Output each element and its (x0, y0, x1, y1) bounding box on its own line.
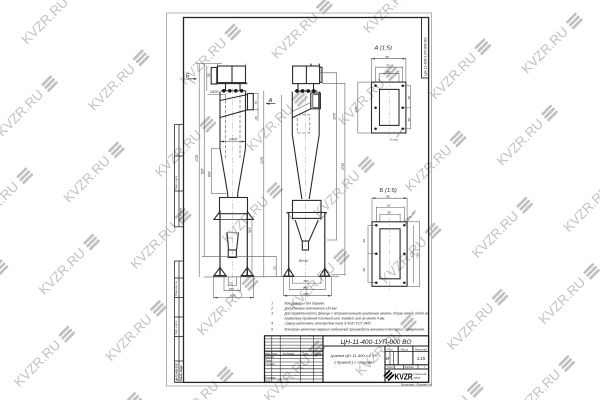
svg-text:ЦН-11-400-1УП-000 ВО: ЦН-11-400-1УП-000 ВО (423, 37, 427, 76)
svg-text:50: 50 (407, 96, 411, 100)
svg-text:герметику применяя плотный шов: герметику применяя плотный шов. Каждый ш… (285, 317, 386, 321)
svg-text:( правый ) с опорами: ( правый ) с опорами (334, 359, 374, 364)
svg-text:3: 3 (271, 311, 273, 315)
svg-text:∅400: ∅400 (229, 137, 238, 141)
svg-text:430: 430 (230, 294, 235, 298)
svg-text:Для герметичности фланцы с опо: Для герметичности фланцы с опорным кольц… (284, 311, 429, 315)
svg-text:1725: 1725 (195, 155, 199, 162)
svg-text:Листов: Листов (403, 366, 414, 369)
svg-text:KVZR: KVZR (395, 372, 414, 382)
svg-text:600: 600 (303, 292, 308, 296)
svg-text:5: 5 (271, 328, 273, 332)
svg-text:KVZR.RU: KVZR.RU (419, 392, 472, 400)
svg-text:50×40: 50×40 (299, 259, 308, 263)
svg-text:Утв.: Утв. (265, 379, 271, 383)
svg-text:4: 4 (271, 321, 273, 325)
svg-text:50: 50 (387, 211, 391, 215)
svg-text:KVZR.RU: KVZR.RU (61, 153, 114, 206)
svg-text:Лист: Лист (386, 366, 393, 369)
svg-text:2: 2 (270, 306, 273, 310)
svg-text:Подп. и дата: Подп. и дата (175, 320, 178, 335)
svg-text:50: 50 (407, 118, 411, 122)
svg-text:KVZR.RU: KVZR.RU (519, 24, 572, 77)
svg-text:Копировал: Копировал (401, 382, 415, 386)
svg-text:№ докум.: № докум. (283, 351, 295, 355)
svg-text:завод: завод (414, 376, 421, 379)
svg-text:ЦН-11-400-1УП-000 ВО: ЦН-11-400-1УП-000 ВО (340, 339, 411, 346)
svg-text:KVZR.RU: KVZR.RU (444, 300, 497, 353)
svg-text:KVZR.RU: KVZR.RU (561, 182, 600, 235)
svg-text:Допустимые отклонения ±10 мм: Допустимые отклонения ±10 мм (284, 306, 338, 310)
svg-text:915: 915 (248, 227, 252, 233)
svg-text:115: 115 (410, 252, 414, 257)
svg-text:Взам. инв. №: Взам. инв. № (175, 281, 178, 296)
svg-text:Контроль качества сварных соед: Контроль качества сварных соединений про… (285, 328, 425, 332)
svg-text:60: 60 (387, 70, 391, 74)
svg-text:925: 925 (200, 168, 204, 174)
svg-text:∅420: ∅420 (209, 90, 218, 94)
svg-text:20: 20 (272, 266, 276, 271)
svg-text:Циклон ЦН-11-400 х 1 УП: Циклон ЦН-11-400 х 1 УП (330, 353, 377, 358)
svg-text:85: 85 (386, 194, 390, 198)
svg-text:Лит.: Лит. (387, 349, 394, 352)
svg-text:Разраб.: Разраб. (265, 355, 275, 359)
svg-text:2715: 2715 (341, 163, 345, 171)
svg-text:KVZR.RU: KVZR.RU (19, 0, 72, 47)
svg-text:1:15: 1:15 (417, 356, 426, 361)
svg-text:Дата: Дата (314, 351, 322, 355)
svg-text:Б: Б (186, 73, 190, 79)
svg-text:KVZR.RU: KVZR.RU (85, 61, 138, 114)
svg-text:Сварку выполнять электродом ти: Сварку выполнять электродом типа Э-42А Г… (285, 321, 372, 325)
svg-text:1670: 1670 (333, 113, 337, 120)
svg-text:Б (1:5): Б (1:5) (380, 188, 397, 194)
svg-text:74: 74 (386, 63, 390, 67)
svg-text:162: 162 (416, 253, 420, 258)
svg-text:75: 75 (254, 101, 258, 105)
svg-text:Пров.: Пров. (265, 359, 272, 363)
svg-text:Изм.Лист: Изм.Лист (265, 351, 278, 355)
svg-text:KVZR.RU: KVZR.RU (511, 367, 564, 400)
svg-text:Н.контр.: Н.контр. (265, 376, 276, 380)
svg-text:70: 70 (229, 282, 233, 286)
svg-text:Подп. и дата: Подп. и дата (175, 175, 178, 190)
svg-text:Подп.: Подп. (302, 351, 309, 355)
svg-text:45: 45 (254, 116, 258, 120)
svg-text:150: 150 (229, 287, 234, 291)
svg-text:KVZR.RU: KVZR.RU (427, 50, 480, 103)
svg-text:1370: 1370 (260, 157, 264, 164)
svg-text:Масштаб: Масштаб (415, 349, 427, 352)
svg-text:KVZR.RU: KVZR.RU (11, 337, 64, 390)
svg-text:KVZR.RU: KVZR.RU (469, 208, 522, 261)
svg-text:Все размеры для справок.: Все размеры для справок. (285, 302, 325, 306)
svg-text:ЦН-11-400-1УП: ЦН-11-400-1УП (175, 363, 179, 381)
svg-text:KVZR.RU: KVZR.RU (0, 179, 21, 232)
svg-text:Инв. № дубл.: Инв. № дубл. (180, 207, 183, 222)
svg-text:62: 62 (387, 204, 391, 208)
svg-text:KVZR.RU: KVZR.RU (0, 87, 46, 140)
svg-text:А (1:5): А (1:5) (374, 46, 392, 52)
svg-text:Инв.№ подл.: Инв.№ подл. (179, 365, 183, 382)
svg-text:KVZR.RU: KVZR.RU (103, 311, 156, 364)
svg-text:Формат А4: Формат А4 (417, 382, 433, 386)
svg-text:Т.контр.: Т.контр. (265, 362, 276, 366)
svg-text:840: 840 (208, 171, 212, 177)
svg-text:95: 95 (385, 55, 389, 59)
svg-text:Масса: Масса (401, 349, 409, 352)
svg-text:300: 300 (303, 279, 308, 283)
svg-text:KVZR.RU: KVZR.RU (536, 275, 589, 328)
svg-text:400: 400 (303, 285, 308, 289)
svg-text:6 отв.: 6 отв. (390, 138, 399, 142)
svg-text:50: 50 (362, 239, 366, 243)
svg-text:50: 50 (207, 73, 211, 77)
svg-text:KVZR.RU: KVZR.RU (494, 116, 547, 169)
svg-text:1: 1 (271, 302, 273, 306)
svg-text:170: 170 (354, 107, 358, 112)
svg-text:50: 50 (362, 268, 366, 272)
svg-text:KVZR.RU: KVZR.RU (36, 245, 89, 298)
